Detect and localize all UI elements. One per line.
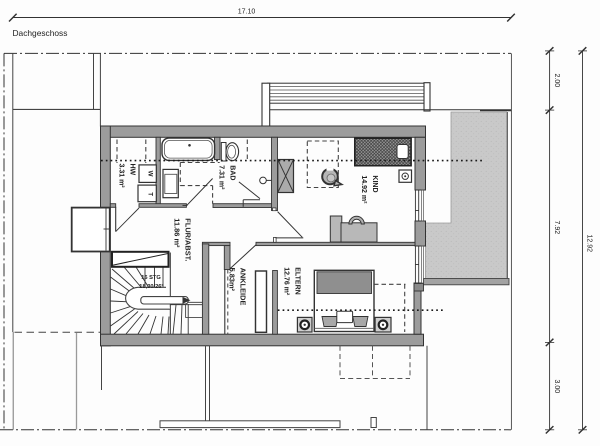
svg-text:12.92: 12.92 bbox=[586, 235, 593, 253]
svg-text:17.10: 17.10 bbox=[238, 9, 256, 16]
svg-text:3.00: 3.00 bbox=[553, 380, 560, 394]
svg-text:2.00: 2.00 bbox=[553, 74, 560, 88]
svg-text:7.92: 7.92 bbox=[553, 221, 560, 235]
svg-text:18,30/26°: 18,30/26° bbox=[139, 284, 164, 290]
svg-text:Dachgeschoss: Dachgeschoss bbox=[13, 28, 68, 38]
svg-text:T: T bbox=[146, 192, 153, 196]
svg-text:16 STG: 16 STG bbox=[141, 275, 161, 281]
svg-text:W: W bbox=[147, 171, 154, 177]
